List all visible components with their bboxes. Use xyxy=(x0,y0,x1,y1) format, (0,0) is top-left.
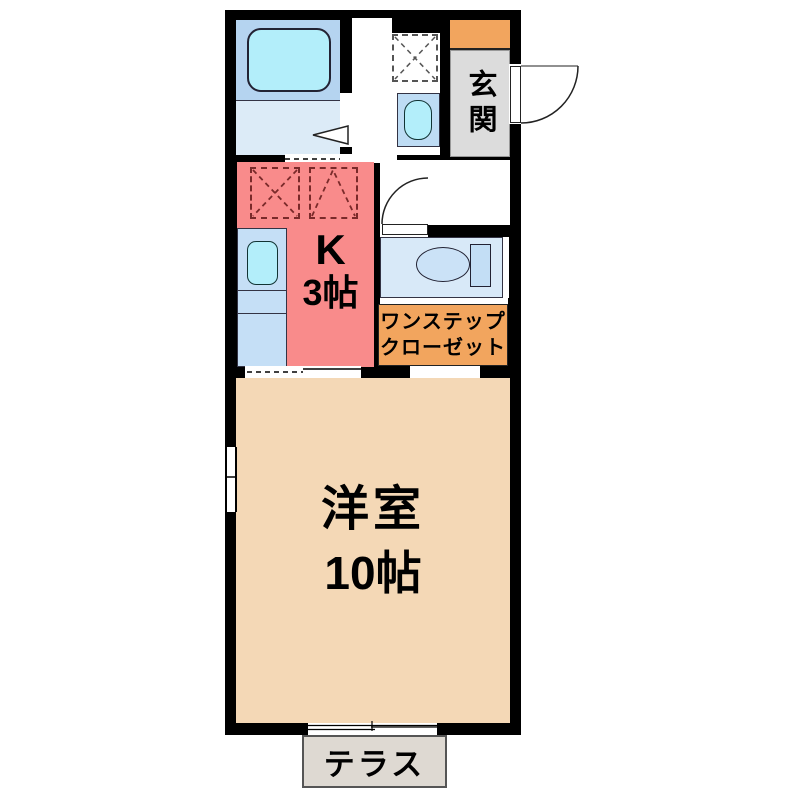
left-wall-window xyxy=(225,447,237,512)
main-room-label-group: 洋室 10帖 xyxy=(236,486,510,596)
kitchen-label: K xyxy=(315,230,345,270)
counter-divider xyxy=(237,313,287,314)
kitchen-sink-icon xyxy=(247,241,278,285)
toilet-bowl-icon xyxy=(416,247,470,282)
main-room-size-label: 10帖 xyxy=(324,550,421,596)
kitchen-label-group: K 3帖 xyxy=(287,230,374,312)
bathroom-floor xyxy=(236,100,340,155)
bathtub-icon xyxy=(247,28,331,92)
hallway-strip xyxy=(503,237,509,298)
stove-burner-left-icon xyxy=(250,167,300,219)
counter-divider xyxy=(237,290,287,291)
entrance-label: 玄関 xyxy=(459,69,501,139)
closet-label-line1: ワンステップ xyxy=(380,309,506,335)
washing-machine-pan-icon xyxy=(392,34,438,82)
wall-segment xyxy=(392,10,440,33)
closet-label-line2: クローゼット xyxy=(380,335,506,361)
kitchen-mainroom-opening xyxy=(245,366,361,378)
main-room-area: 洋室 10帖 xyxy=(236,378,510,723)
terrace-label: テラス xyxy=(324,739,425,784)
bathroom-folding-door xyxy=(340,93,352,147)
entrance-door-swing xyxy=(521,66,578,123)
closet-area: ワンステップ クローゼット xyxy=(378,304,508,366)
toilet-tank-icon xyxy=(470,244,491,287)
entrance-step xyxy=(450,20,510,50)
stove-burner-right-icon xyxy=(309,167,358,219)
kitchen-size-label: 3帖 xyxy=(302,274,358,312)
wall-segment xyxy=(428,225,510,237)
floor-plan: 玄関 K 3帖 ワンステップ クローゼット 洋室 10帖 テラス xyxy=(0,0,800,800)
toilet-door-leaf xyxy=(382,224,428,235)
terrace-area: テラス xyxy=(302,735,447,788)
entrance-area: 玄関 xyxy=(450,50,510,157)
main-room-label: 洋室 xyxy=(321,486,425,534)
front-door-leaf xyxy=(510,66,521,123)
terrace-sliding-door xyxy=(308,723,437,735)
closet-mainroom-opening xyxy=(410,366,480,378)
wash-basin-icon xyxy=(404,100,432,140)
